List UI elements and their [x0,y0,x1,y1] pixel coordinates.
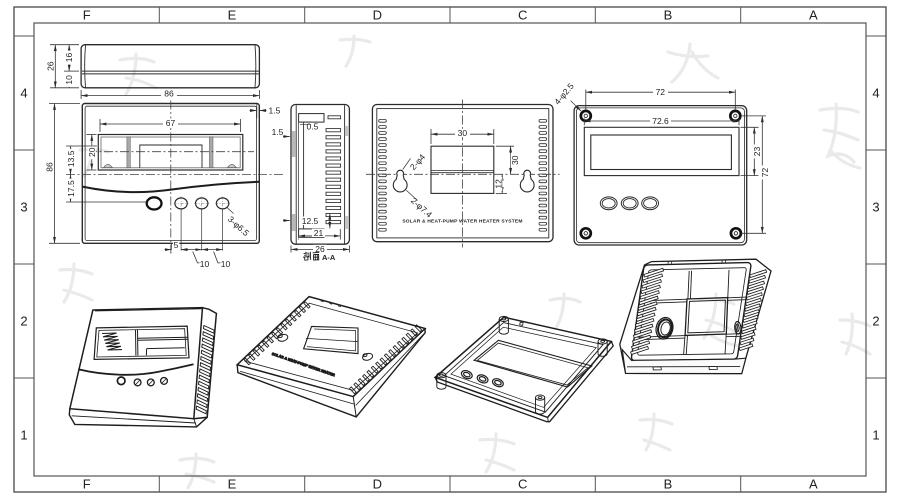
svg-text:3: 3 [872,200,879,215]
svg-text:13.5: 13.5 [66,150,76,167]
svg-text:16: 16 [64,53,74,63]
svg-text:17.5: 17.5 [66,180,76,197]
svg-text:10: 10 [221,259,231,269]
svg-text:72: 72 [656,87,666,97]
svg-text:10: 10 [200,259,210,269]
svg-text:12: 12 [493,179,503,189]
svg-text:A: A [809,477,818,492]
svg-text:23: 23 [752,147,762,157]
svg-text:1.5: 1.5 [269,106,281,116]
svg-text:67: 67 [166,118,176,128]
svg-text:F: F [83,8,91,23]
svg-text:4: 4 [872,86,879,101]
svg-text:30: 30 [458,128,468,138]
svg-text:72: 72 [760,168,770,178]
svg-text:A: A [809,8,818,23]
svg-text:1: 1 [20,428,27,443]
svg-text:1.5: 1.5 [272,127,284,137]
svg-text:5: 5 [174,240,179,250]
svg-text:E: E [228,8,237,23]
svg-text:10: 10 [64,75,74,85]
svg-text:0.5: 0.5 [307,122,319,132]
svg-text:F: F [83,477,91,492]
svg-text:A-A: A-A [322,253,336,262]
svg-text:86: 86 [45,162,55,172]
svg-text:2: 2 [20,314,27,329]
svg-text:2-φ7.4: 2-φ7.4 [409,195,434,219]
svg-text:4: 4 [20,86,27,101]
svg-text:C: C [518,8,527,23]
svg-text:26: 26 [46,61,56,71]
svg-text:3-φ6.5: 3-φ6.5 [226,214,251,238]
svg-text:D: D [373,8,382,23]
svg-text:B: B [664,477,673,492]
svg-text:SOLAR & HEAT-PUMP WATER HEATER: SOLAR & HEAT-PUMP WATER HEATER SYSTEM [402,219,522,225]
svg-text:30: 30 [510,155,520,165]
svg-text:2: 2 [872,314,879,329]
svg-text:2-φ4: 2-φ4 [408,152,428,172]
svg-text:C: C [518,477,527,492]
svg-text:B: B [664,8,673,23]
svg-text:21: 21 [314,228,324,238]
svg-text:12.5: 12.5 [302,216,319,226]
svg-text:1: 1 [872,428,879,443]
svg-text:86: 86 [164,89,174,99]
svg-text:20: 20 [87,147,97,157]
svg-text:3: 3 [20,200,27,215]
svg-text:E: E [228,477,237,492]
svg-text:72.6: 72.6 [652,116,669,126]
svg-text:D: D [373,477,382,492]
svg-text:SOLAR & HEAT-PUMP WATER HEATER: SOLAR & HEAT-PUMP WATER HEATER [271,352,336,378]
